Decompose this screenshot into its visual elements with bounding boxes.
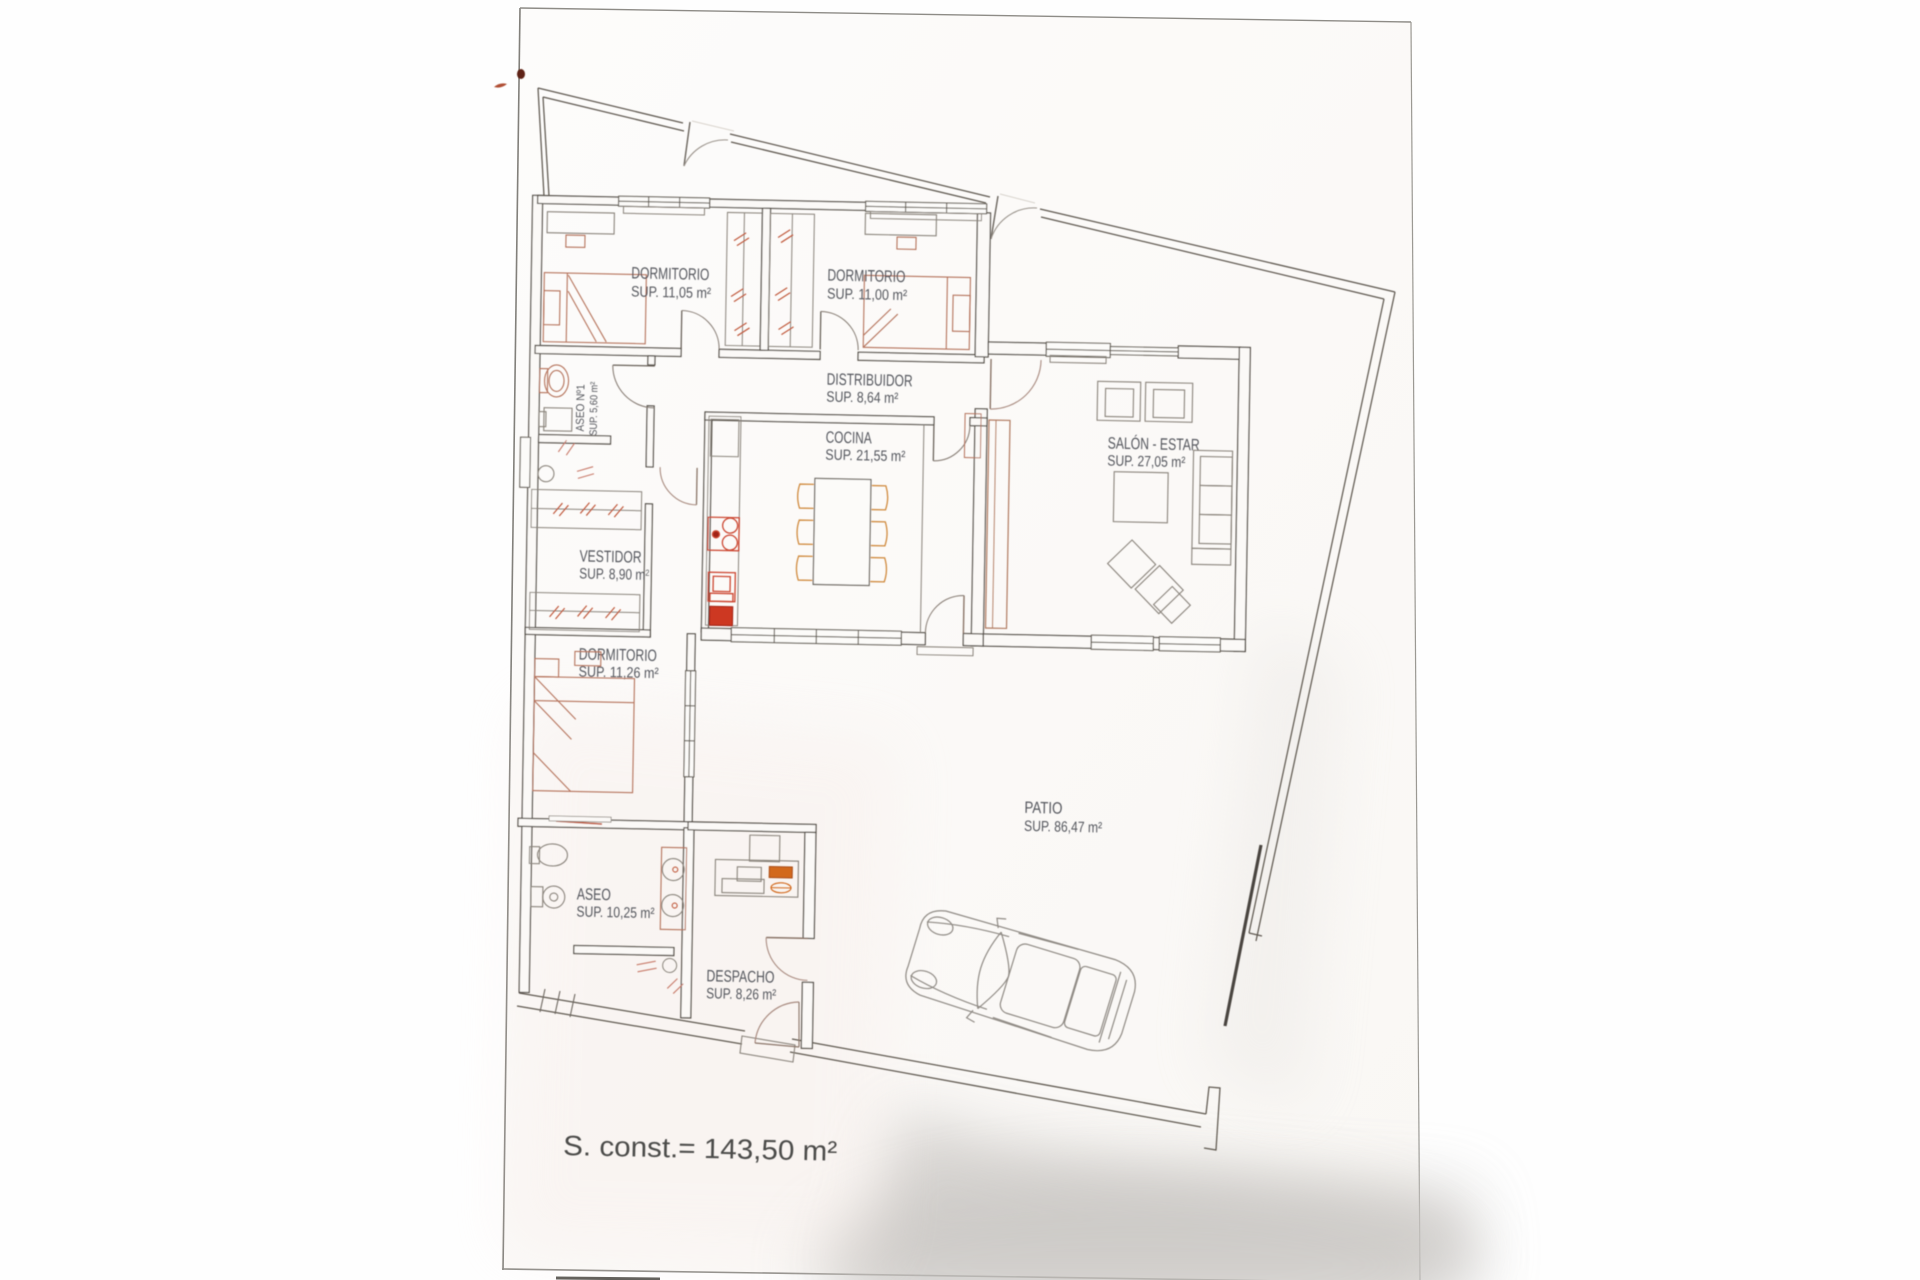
- svg-text:SUP. 8,26 m²: SUP. 8,26 m²: [706, 985, 776, 1003]
- svg-text:COCINA: COCINA: [826, 429, 872, 448]
- svg-text:SUP. 8,64 m²: SUP. 8,64 m²: [826, 389, 898, 408]
- svg-text:SUP. 5,60 m²: SUP. 5,60 m²: [588, 381, 601, 436]
- svg-text:SUP. 11,26 m²: SUP. 11,26 m²: [578, 663, 658, 682]
- svg-text:DORMITORIO: DORMITORIO: [631, 264, 709, 284]
- svg-text:DESPACHO: DESPACHO: [706, 967, 774, 986]
- svg-text:ASEO: ASEO: [577, 886, 611, 905]
- svg-text:PATIO: PATIO: [1024, 799, 1062, 818]
- svg-text:SUP. 86,47 m²: SUP. 86,47 m²: [1024, 818, 1102, 837]
- svg-text:SUP. 10,25 m²: SUP. 10,25 m²: [576, 904, 654, 923]
- svg-text:S. const.= 143,50 m²: S. const.= 143,50 m²: [563, 1130, 838, 1167]
- svg-text:VESTIDOR: VESTIDOR: [579, 547, 641, 566]
- svg-text:SALÓN - ESTAR: SALÓN - ESTAR: [1108, 433, 1200, 454]
- svg-text:DISTRIBUIDOR: DISTRIBUIDOR: [827, 371, 913, 391]
- svg-text:SUP. 8,90 m²: SUP. 8,90 m²: [579, 565, 649, 583]
- svg-text:SUP. 21,55 m²: SUP. 21,55 m²: [825, 447, 905, 466]
- svg-text:SUP. 11,00 m²: SUP. 11,00 m²: [827, 286, 907, 305]
- svg-text:DORMITORIO: DORMITORIO: [579, 645, 657, 665]
- svg-text:SUP. 27,05 m²: SUP. 27,05 m²: [1107, 452, 1185, 471]
- svg-text:SUP. 11,05 m²: SUP. 11,05 m²: [631, 283, 711, 302]
- svg-text:ASEO Nº1: ASEO Nº1: [575, 384, 588, 431]
- svg-text:DORMITORIO: DORMITORIO: [827, 267, 905, 287]
